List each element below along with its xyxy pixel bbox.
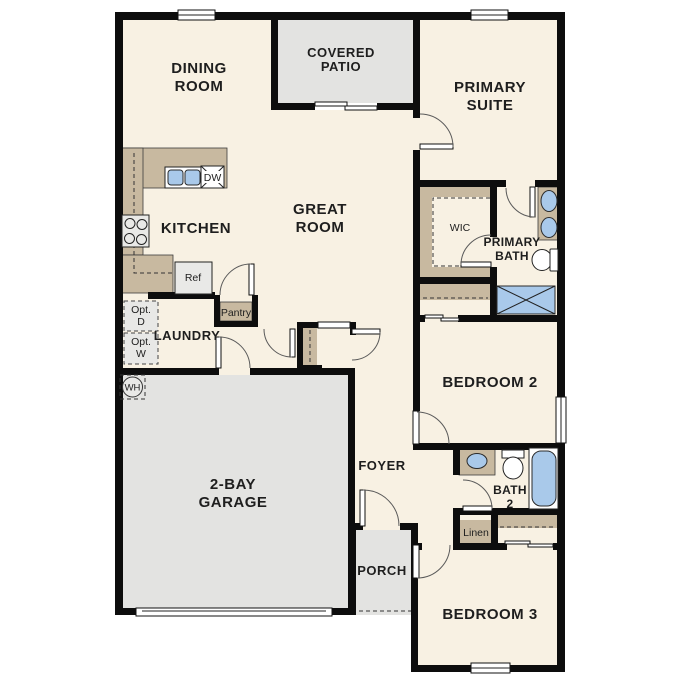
refrigerator-label: Ref (185, 272, 201, 284)
patio-slider-panel (315, 102, 347, 106)
laundry-label: LAUNDRY (154, 328, 221, 343)
bath2-sink-icon (467, 454, 487, 469)
primary-suite-label: PRIMARY (454, 79, 526, 96)
water-heater-label: WH (125, 383, 141, 394)
optional-dryer-label: Opt. (131, 304, 151, 316)
pantry-label: Pantry (221, 307, 252, 319)
primary-suite-door (420, 144, 453, 149)
dining-room-label: DINING (171, 60, 227, 77)
floor-plan-canvas: DINING ROOM COVERED PATIO PRIMARY SUITE … (0, 0, 687, 687)
wic-door (461, 262, 491, 267)
optional-dryer-label: D (137, 316, 145, 328)
hall-door (290, 329, 295, 357)
cased-opening (318, 322, 350, 328)
primary-bath-sink-icon (541, 218, 557, 238)
front-door (360, 490, 365, 526)
kitchen-counter-corner (122, 255, 173, 293)
covered-patio-label: PATIO (321, 59, 361, 74)
kitchen-label: KITCHEN (161, 220, 231, 237)
bedroom2-closet-bypass-door (441, 318, 459, 321)
coat-closet-door (352, 329, 380, 334)
linen-label: Linen (463, 527, 489, 539)
kitchen-sink-basin-icon (168, 170, 183, 185)
garage-label: 2-BAY (210, 476, 256, 493)
bath2-toilet-icon (503, 457, 523, 479)
dishwasher-label: DW (204, 172, 222, 184)
optional-washer-label: W (136, 348, 146, 360)
bedroom3-closet-bypass-door (528, 544, 553, 547)
bath2-label: 2 (507, 497, 514, 511)
primary-bath-label: BATH (495, 249, 529, 263)
bedroom2-door (413, 411, 419, 444)
primary-toilet-icon (532, 250, 552, 271)
primary-bath-sink-icon (541, 191, 557, 212)
primary-bath-label: PRIMARY (484, 235, 541, 249)
bedroom3-closet-shelf (498, 515, 558, 528)
great-room-label: GREAT (293, 201, 347, 218)
bedroom2-label: BEDROOM 2 (442, 374, 537, 391)
bedroom3-closet-bypass-door (505, 541, 530, 544)
kitchen-sink-basin-icon (185, 170, 200, 185)
foyer-label: FOYER (358, 458, 405, 473)
bedroom3-label: BEDROOM 3 (442, 606, 537, 623)
garage-label: GARAGE (199, 494, 268, 511)
dining-room-label: ROOM (175, 78, 224, 95)
optional-washer-label: Opt. (131, 336, 151, 348)
porch-label: PORCH (357, 563, 406, 578)
bedroom2-closet-bypass-door (425, 315, 443, 318)
garage-door (136, 608, 332, 616)
bathtub-icon (532, 451, 556, 506)
pantry-door (249, 264, 254, 295)
wic-label: WIC (450, 222, 471, 234)
patio-slider-panel (345, 106, 377, 110)
great-room-label: ROOM (296, 219, 345, 236)
primary-suite-label: SUITE (467, 97, 514, 114)
primary-bath-door (530, 187, 535, 217)
covered-patio-label: COVERED (307, 45, 375, 60)
bath2-label: BATH (493, 483, 527, 497)
bath2-door (463, 506, 492, 511)
bedroom3-door (413, 545, 419, 578)
floor-plan-page: DINING ROOM COVERED PATIO PRIMARY SUITE … (0, 0, 687, 687)
